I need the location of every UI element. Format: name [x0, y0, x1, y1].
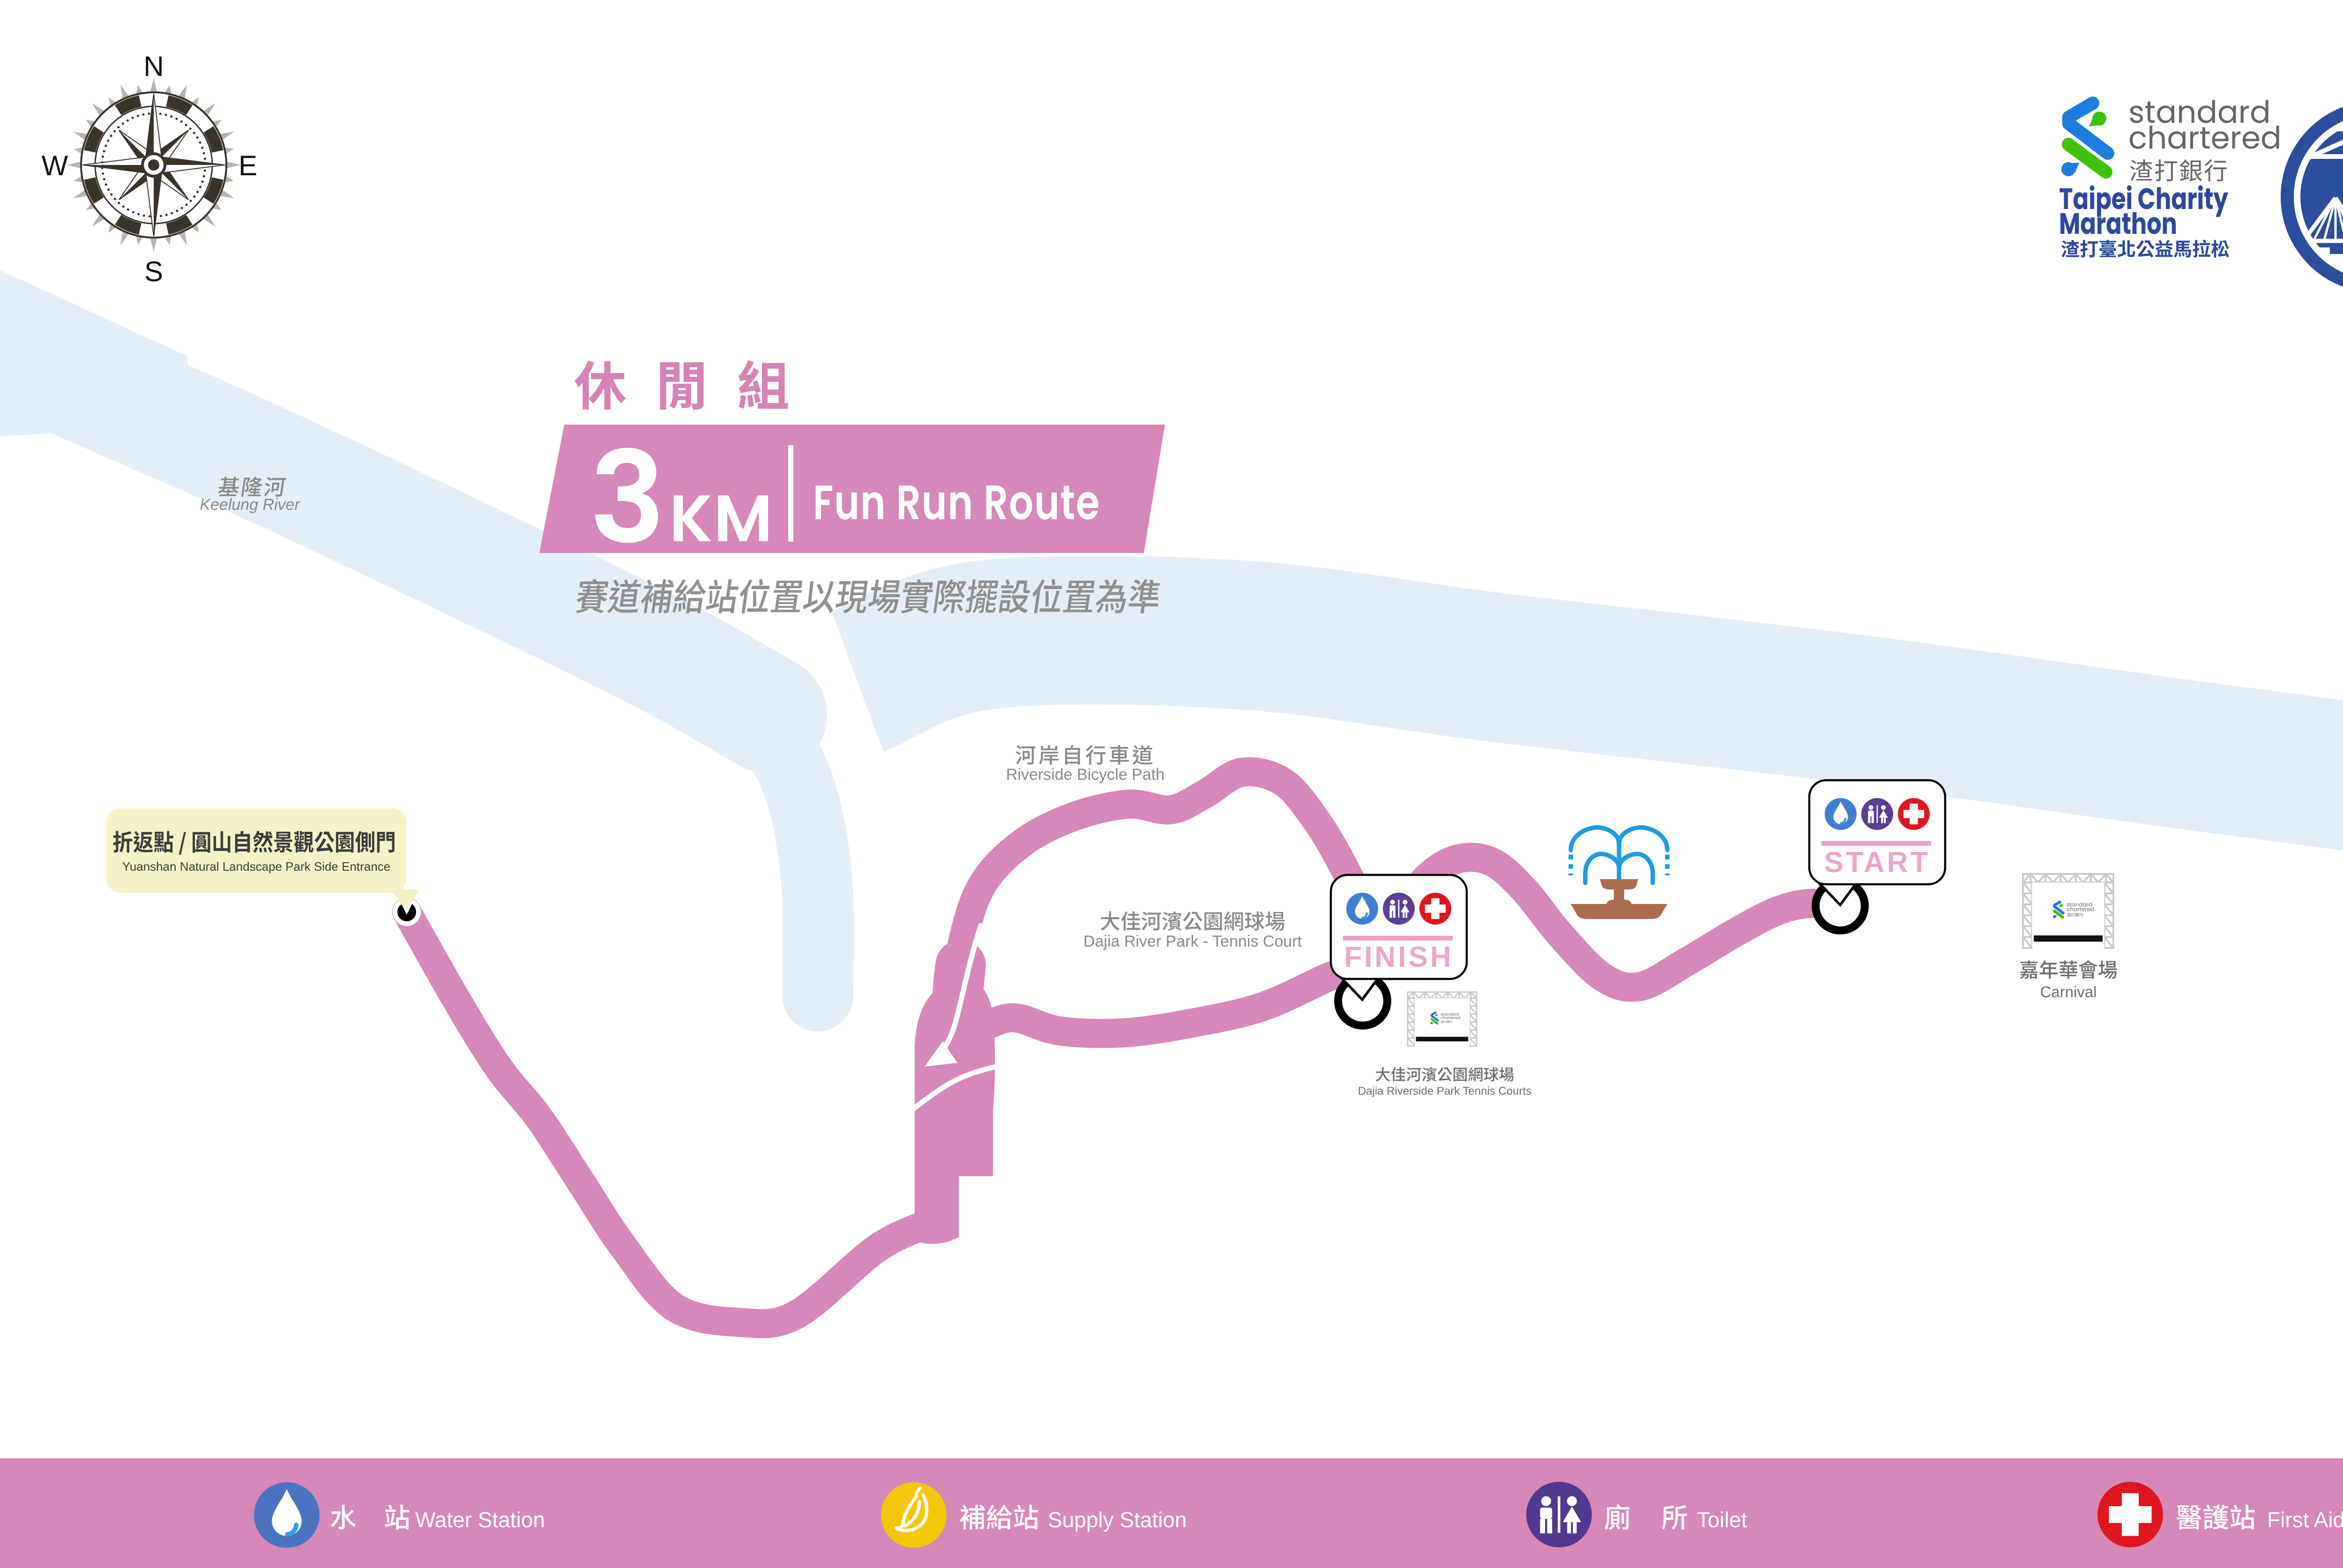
svg-text:W: W	[42, 150, 68, 181]
svg-text:N: N	[143, 51, 164, 82]
svg-text:S: S	[144, 256, 163, 287]
svg-text:Toilet: Toilet	[1697, 1508, 1747, 1532]
svg-text:Supply Station: Supply Station	[1048, 1508, 1187, 1532]
svg-text:Dajia River Park - Tennis Cour: Dajia River Park - Tennis Court	[1083, 933, 1302, 950]
svg-text:Carnival: Carnival	[2040, 983, 2097, 1001]
svg-text:FINISH: FINISH	[1344, 941, 1453, 973]
svg-text:First Aid: First Aid	[2267, 1508, 2343, 1532]
svg-text:Water Station: Water Station	[415, 1508, 545, 1532]
svg-text:E: E	[239, 150, 257, 181]
svg-text:Dajia Riverside Park Tennis Co: Dajia Riverside Park Tennis Courts	[1358, 1085, 1531, 1098]
svg-text:Yuanshan Natural Landscape Par: Yuanshan Natural Landscape Park Side Ent…	[122, 859, 390, 874]
svg-text:START: START	[1824, 846, 1930, 879]
svg-text:Keelung River: Keelung River	[200, 496, 300, 514]
svg-text:Riverside Bicycle Path: Riverside Bicycle Path	[1006, 766, 1164, 784]
